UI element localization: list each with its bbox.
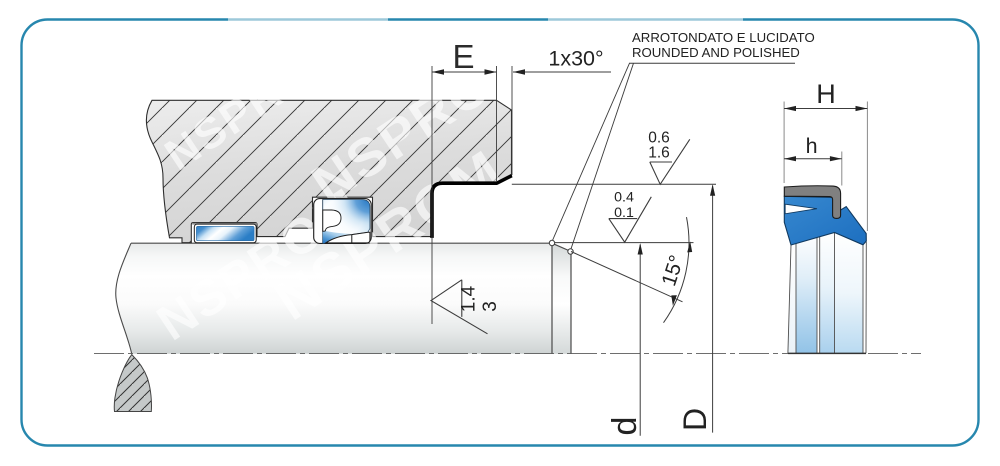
- svg-text:h: h: [806, 134, 818, 158]
- svg-text:1x30°: 1x30°: [548, 47, 603, 71]
- svg-text:ARROTONDATO E LUCIDATO: ARROTONDATO E LUCIDATO: [632, 30, 815, 45]
- svg-text:H: H: [816, 79, 836, 109]
- svg-text:3: 3: [480, 301, 501, 312]
- svg-text:0.4: 0.4: [614, 190, 634, 206]
- svg-text:d: d: [606, 417, 644, 436]
- svg-text:E: E: [452, 38, 474, 75]
- svg-text:ROUNDED AND POLISHED: ROUNDED AND POLISHED: [632, 45, 800, 60]
- svg-text:0.1: 0.1: [614, 205, 634, 221]
- svg-text:1.4: 1.4: [459, 285, 480, 312]
- svg-text:D: D: [677, 408, 713, 431]
- svg-text:1.6: 1.6: [648, 144, 670, 161]
